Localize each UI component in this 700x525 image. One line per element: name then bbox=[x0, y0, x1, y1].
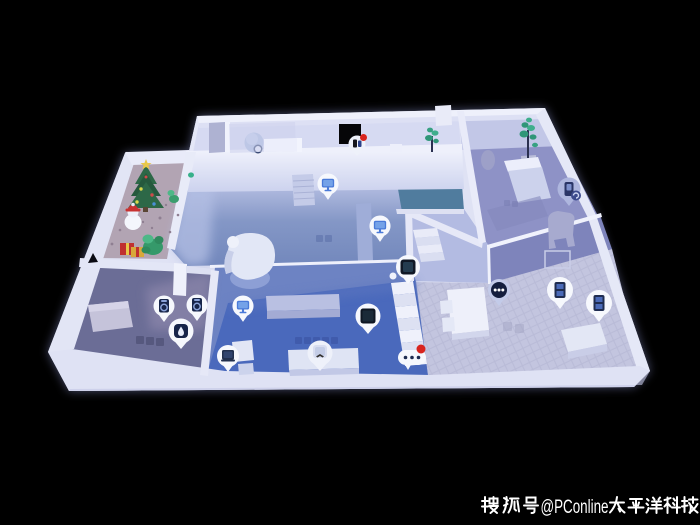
svg-text:@PConline: @PConline bbox=[541, 497, 609, 518]
